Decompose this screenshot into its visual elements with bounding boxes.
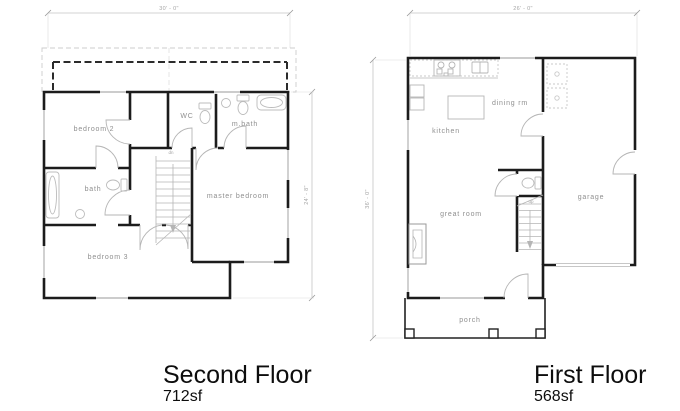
room-label-mbath: m.bath: [232, 121, 258, 128]
room-label-wc: WC: [180, 113, 193, 120]
first-floor-area: 568sf: [534, 388, 647, 406]
first-floor-height-dimension: 36' - 0": [365, 189, 371, 208]
first-floor-title: First Floor: [534, 362, 647, 388]
room-label-bedroom3: bedroom 3: [88, 254, 129, 261]
floor-plan-sheet: 30' - 0" 24' - 8": [0, 0, 680, 411]
kitchen-fixtures: [410, 60, 498, 119]
deck-dashed-outline: [42, 48, 296, 92]
room-label-bedroom2: bedroom 2: [74, 126, 115, 133]
second-floor-doors: [96, 120, 246, 250]
first-floor-walls: [408, 58, 635, 298]
room-label-garage: garage: [578, 194, 605, 201]
room-label-bath: bath: [85, 186, 102, 193]
garage-equipment: [547, 64, 567, 108]
second-floor-width-dimension: 30' - 0": [159, 6, 178, 12]
fireplace: [409, 224, 426, 264]
second-floor-area: 712sf: [163, 388, 312, 406]
first-floor-title-block: First Floor 568sf: [534, 362, 647, 406]
second-floor-top-dimension: [45, 10, 293, 48]
room-label-porch: porch: [459, 317, 481, 324]
second-floor-title-block: Second Floor 712sf: [163, 362, 312, 406]
room-label-kitchen: kitchen: [432, 128, 460, 135]
first-floor-stairs-label: up: [528, 199, 534, 204]
first-floor-width-dimension: 26' - 0": [513, 6, 532, 12]
second-floor-plan: 30' - 0" 24' - 8": [42, 6, 315, 301]
first-floor-side-dimension: [370, 57, 406, 341]
room-label-great-room: great room: [440, 211, 482, 218]
room-label-dining: dining rm: [492, 100, 528, 107]
second-floor-title: Second Floor: [163, 362, 312, 388]
first-floor-plan: 26' - 0" 36' - 0": [365, 6, 640, 341]
first-floor-top-dimension: [407, 10, 640, 56]
second-floor-stairs-label: dn: [168, 150, 174, 155]
floor-plan-drawing: 30' - 0" 24' - 8": [0, 0, 680, 358]
staircase-second-floor: [156, 156, 191, 245]
room-label-master-bedroom: master bedroom: [207, 193, 269, 200]
first-floor-windows: [408, 58, 635, 298]
powder-room-fixtures: [522, 177, 541, 189]
second-floor-height-dimension: 24' - 8": [304, 185, 310, 204]
